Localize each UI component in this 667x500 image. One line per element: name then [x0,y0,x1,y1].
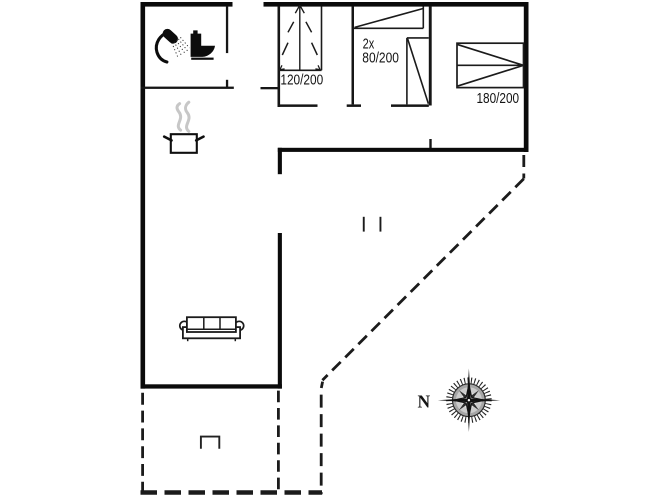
svg-text:80/200: 80/200 [362,51,399,67]
svg-text:120/200: 120/200 [280,72,323,88]
svg-text:180/200: 180/200 [477,91,520,107]
svg-text:N: N [418,391,431,411]
